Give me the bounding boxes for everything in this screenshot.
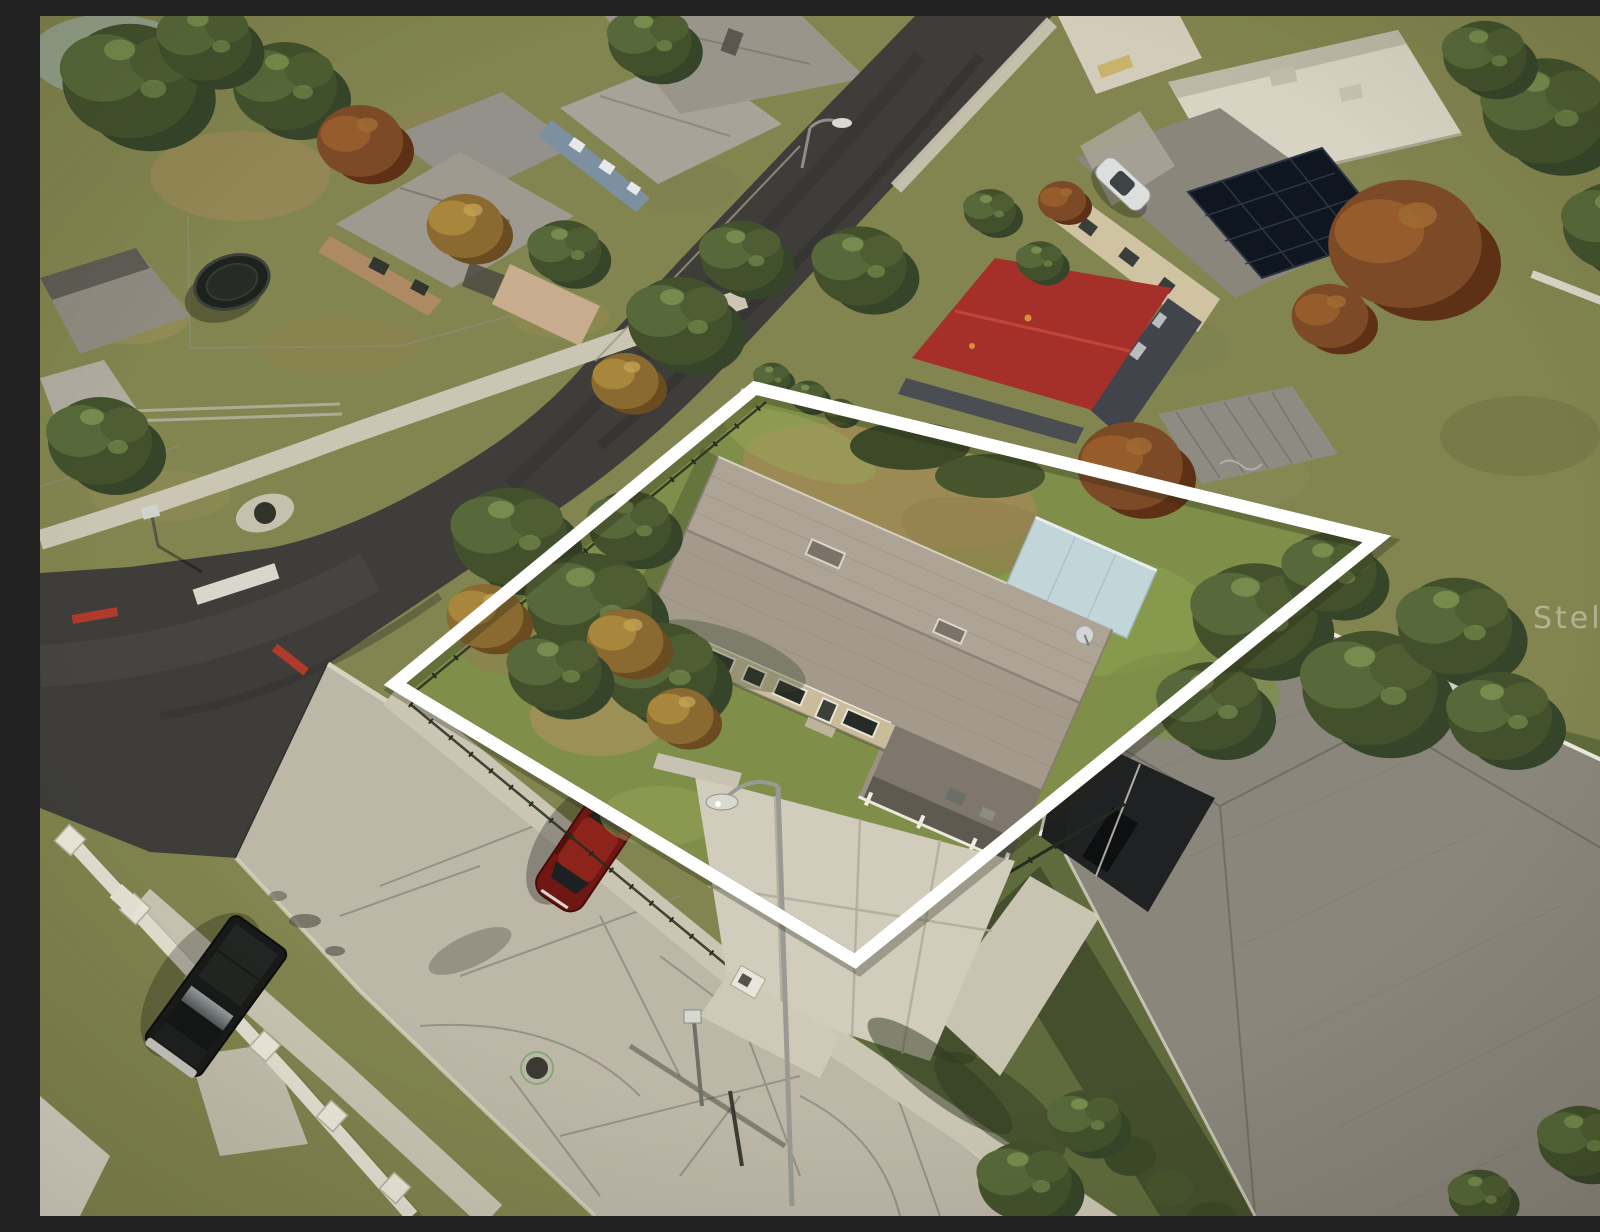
vignette <box>40 16 1600 1216</box>
aerial-photo: Stellar <box>40 16 1600 1216</box>
